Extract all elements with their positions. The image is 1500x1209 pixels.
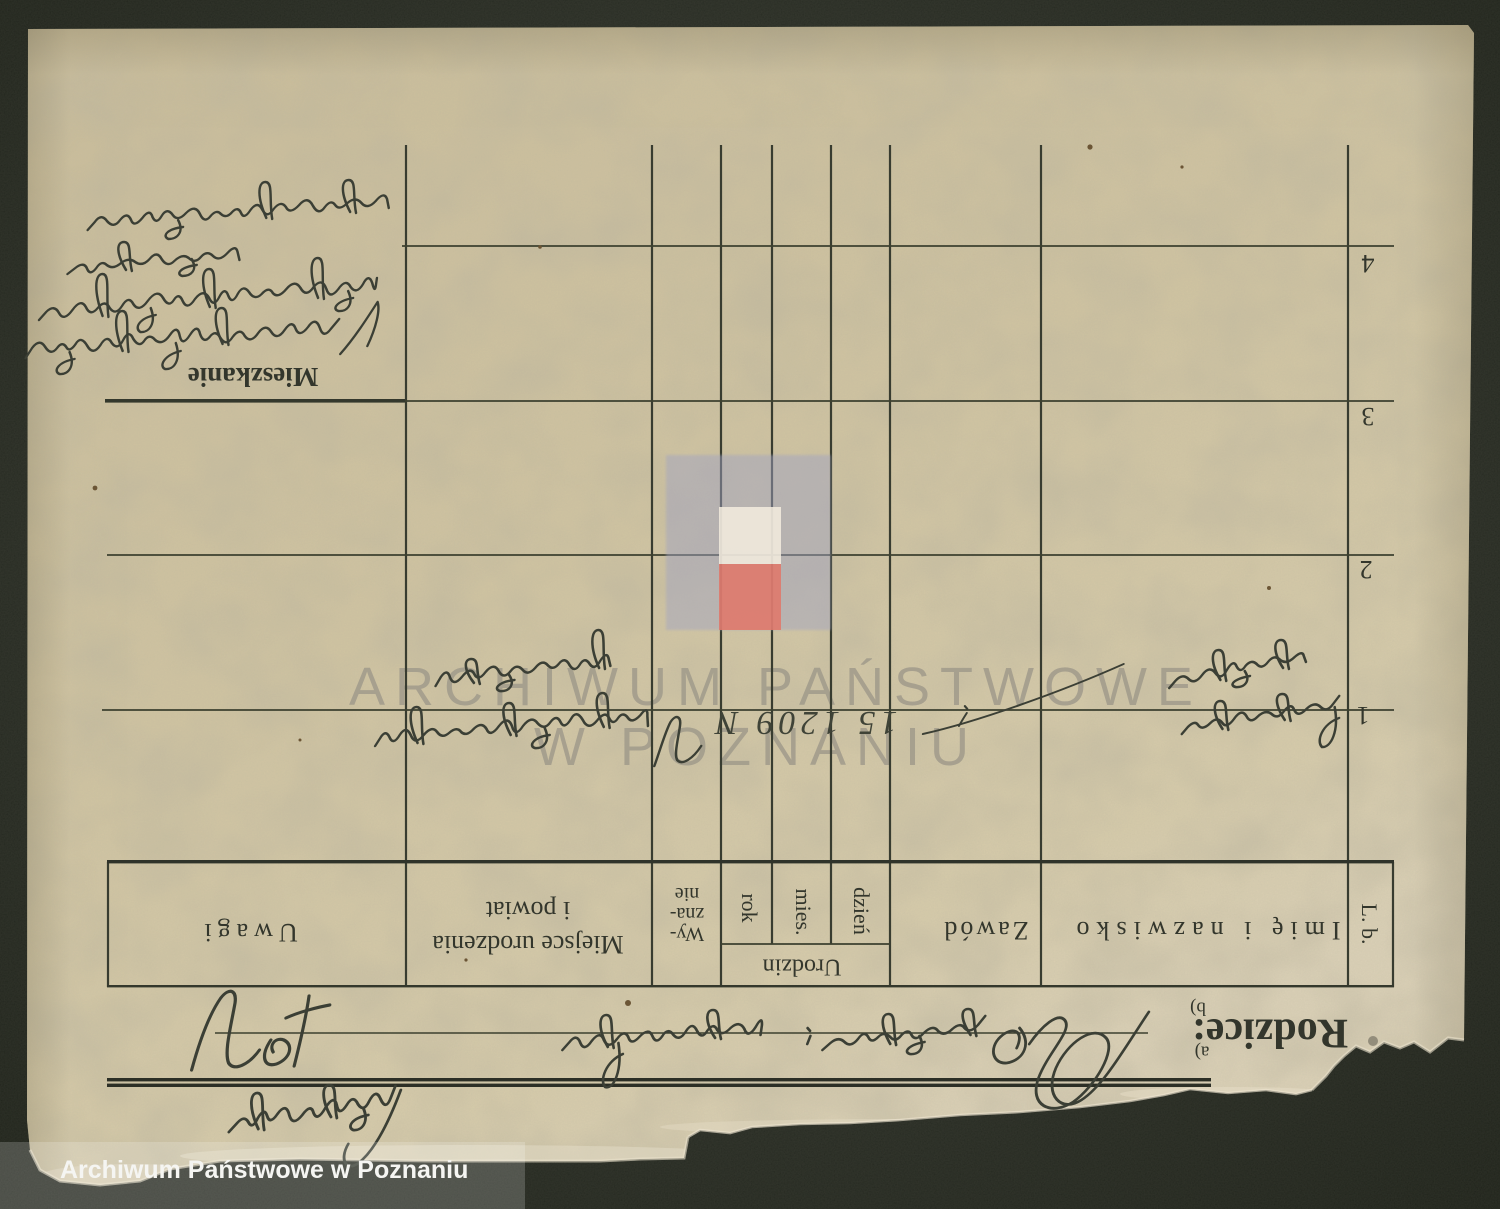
svg-text:a): a): [1195, 1042, 1210, 1063]
svg-text:1: 1: [1357, 701, 1370, 730]
svg-text:i powiat: i powiat: [485, 896, 570, 925]
svg-text:Archiwum Państwowe w Poznaniu: Archiwum Państwowe w Poznaniu: [60, 1156, 468, 1184]
svg-text:2: 2: [1360, 555, 1373, 584]
svg-text:nie: nie: [675, 883, 700, 905]
svg-text:rok: rok: [737, 893, 762, 922]
svg-text:Imię i nazwisko: Imię i nazwisko: [1069, 916, 1340, 945]
svg-text:Wy-: Wy-: [670, 923, 704, 945]
svg-text:mies.: mies.: [791, 888, 816, 935]
svg-text:4: 4: [1362, 249, 1375, 278]
svg-text:zna-: zna-: [670, 903, 704, 925]
svg-text:Mieszkanie: Mieszkanie: [188, 362, 318, 392]
svg-text:L. b.: L. b.: [1357, 904, 1382, 945]
svg-text:b): b): [1190, 998, 1206, 1019]
svg-text:Uwagi: Uwagi: [198, 918, 297, 947]
svg-text:15 1209 N: 15 1209 N: [711, 704, 898, 741]
svg-text:Miejsce urodzenia: Miejsce urodzenia: [432, 930, 624, 959]
svg-text:dzień: dzień: [849, 887, 874, 935]
svg-text:Zawód: Zawód: [941, 916, 1028, 945]
svg-text:3: 3: [1362, 402, 1375, 431]
svg-text:Rodzice:: Rodzice:: [1192, 1009, 1348, 1055]
svg-text:Urodzin: Urodzin: [763, 953, 842, 979]
